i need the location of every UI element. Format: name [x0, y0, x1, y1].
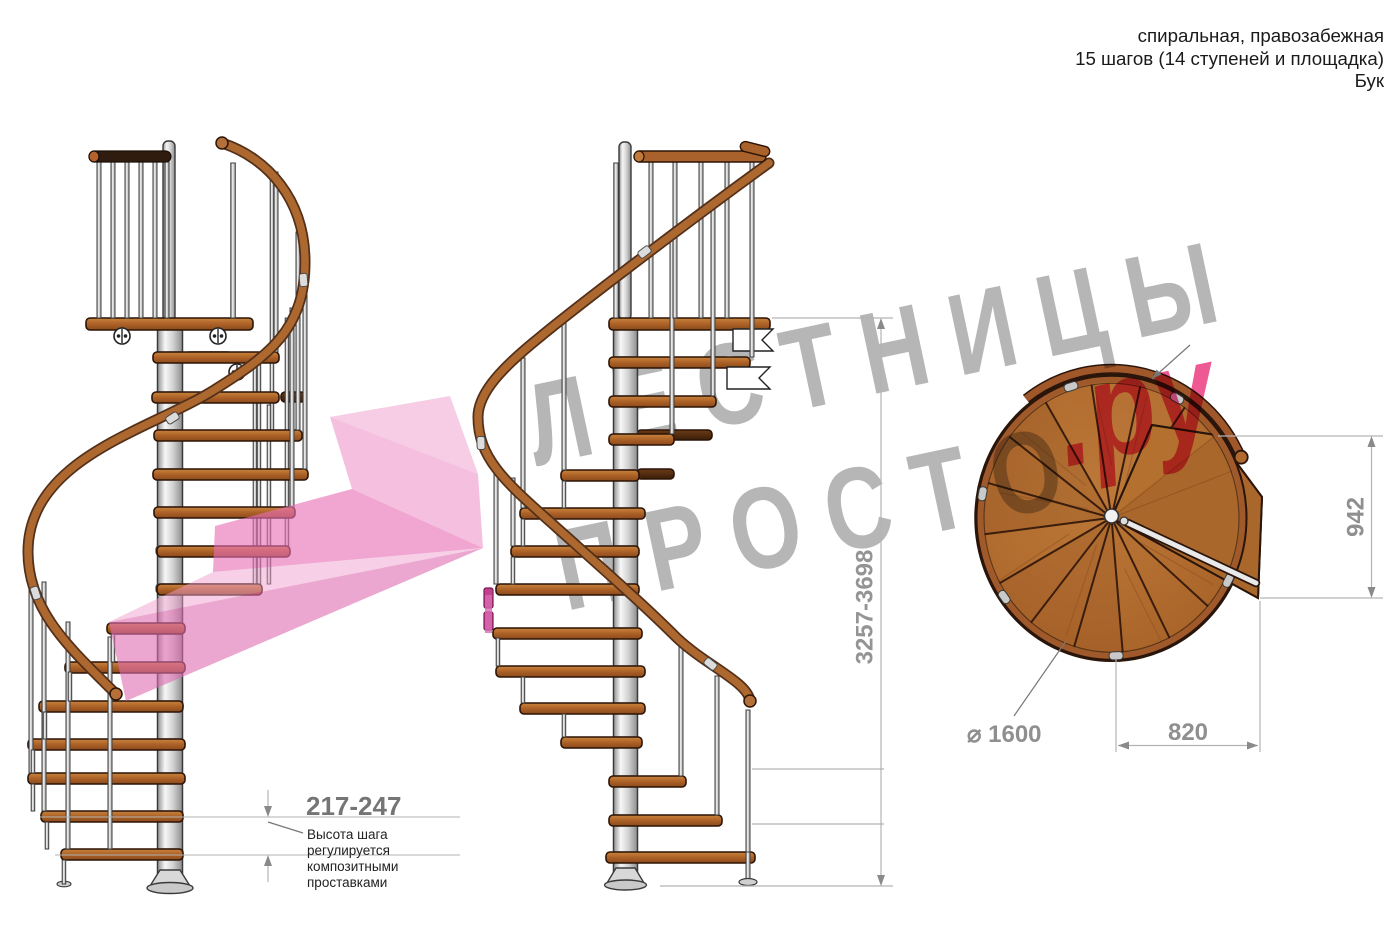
svg-text:15 шагов (14 ступеней и площад: 15 шагов (14 ступеней и площадка) [1075, 48, 1384, 69]
svg-text:проставками: проставками [307, 875, 387, 890]
svg-text:регулируется: регулируется [307, 843, 390, 858]
svg-text:⌀ 1600: ⌀ 1600 [967, 721, 1042, 748]
svg-text:спиральная, правозабежная: спиральная, правозабежная [1138, 25, 1384, 46]
svg-text:Высота шага: Высота шага [307, 827, 388, 842]
svg-text:820: 820 [1168, 719, 1208, 746]
svg-text:942: 942 [1342, 497, 1369, 537]
svg-text:3257-3698: 3257-3698 [851, 550, 878, 665]
svg-text:Бук: Бук [1355, 70, 1385, 91]
svg-text:композитными: композитными [307, 859, 398, 874]
svg-text:217-247: 217-247 [306, 791, 401, 821]
